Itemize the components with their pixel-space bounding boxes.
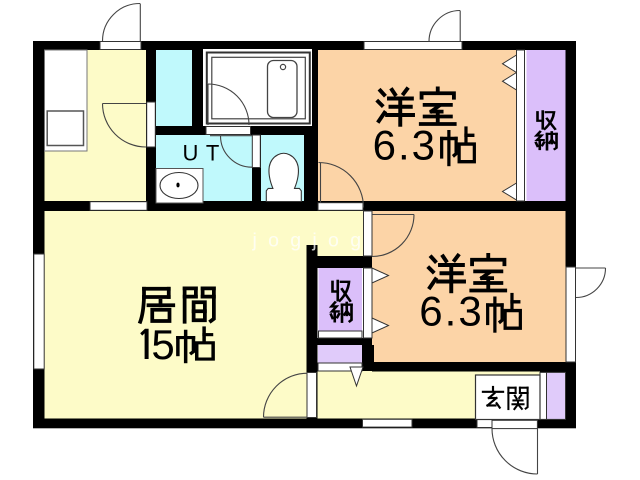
svg-text:UT: UT <box>183 141 227 166</box>
svg-text:jogjog: jogjog <box>252 230 373 252</box>
svg-text:6.3: 6.3 <box>373 122 437 169</box>
svg-text:6.3: 6.3 <box>419 288 483 335</box>
svg-text:5: 5 <box>151 321 174 368</box>
